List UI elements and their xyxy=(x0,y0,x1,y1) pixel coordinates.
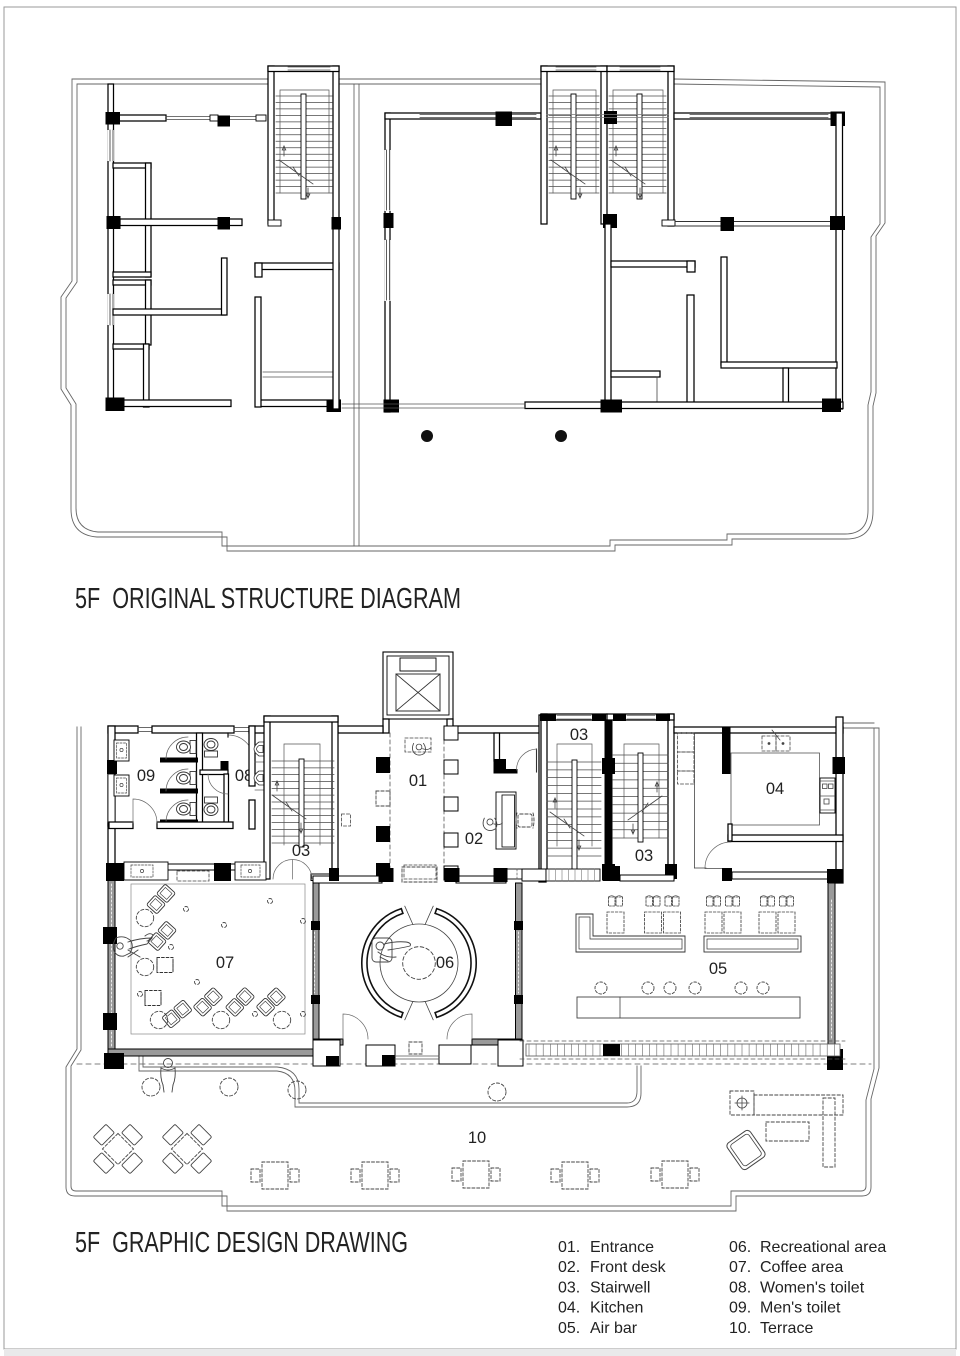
svg-text:01: 01 xyxy=(409,772,427,790)
svg-text:06: 06 xyxy=(436,954,454,972)
svg-text:09.: 09. xyxy=(729,1300,751,1317)
svg-text:Coffee area: Coffee area xyxy=(760,1259,843,1276)
svg-text:10.: 10. xyxy=(729,1320,751,1337)
svg-text:04.: 04. xyxy=(558,1300,580,1317)
svg-text:Front desk: Front desk xyxy=(590,1259,667,1276)
svg-text:05.: 05. xyxy=(558,1320,580,1337)
svg-text:Women's toilet: Women's toilet xyxy=(760,1279,865,1296)
svg-text:Recreational area: Recreational area xyxy=(760,1239,886,1256)
svg-text:5F GRAPHIC DESIGN DRAWING: 5F GRAPHIC DESIGN DRAWING xyxy=(75,1227,408,1259)
svg-text:09: 09 xyxy=(137,767,155,785)
svg-text:Entrance: Entrance xyxy=(590,1239,654,1256)
svg-text:03: 03 xyxy=(635,847,653,865)
svg-text:08.: 08. xyxy=(729,1279,751,1296)
svg-text:02: 02 xyxy=(465,830,483,848)
svg-text:03.: 03. xyxy=(558,1279,580,1296)
svg-text:01.: 01. xyxy=(558,1239,580,1256)
svg-text:Stairwell: Stairwell xyxy=(590,1279,650,1296)
svg-text:Air bar: Air bar xyxy=(590,1320,638,1337)
svg-text:05: 05 xyxy=(709,960,727,978)
svg-text:5F ORIGINAL STRUCTURE DIAGRAM: 5F ORIGINAL STRUCTURE DIAGRAM xyxy=(75,583,461,615)
svg-text:07: 07 xyxy=(216,954,234,972)
svg-text:02.: 02. xyxy=(558,1259,580,1276)
svg-text:10: 10 xyxy=(468,1129,486,1147)
svg-text:03: 03 xyxy=(292,842,310,860)
svg-text:07.: 07. xyxy=(729,1259,751,1276)
svg-text:06.: 06. xyxy=(729,1239,751,1256)
svg-text:04: 04 xyxy=(766,780,784,798)
svg-text:Men's toilet: Men's toilet xyxy=(760,1300,841,1317)
svg-text:Terrace: Terrace xyxy=(760,1320,813,1337)
svg-text:03: 03 xyxy=(570,726,588,744)
svg-text:Kitchen: Kitchen xyxy=(590,1300,643,1317)
